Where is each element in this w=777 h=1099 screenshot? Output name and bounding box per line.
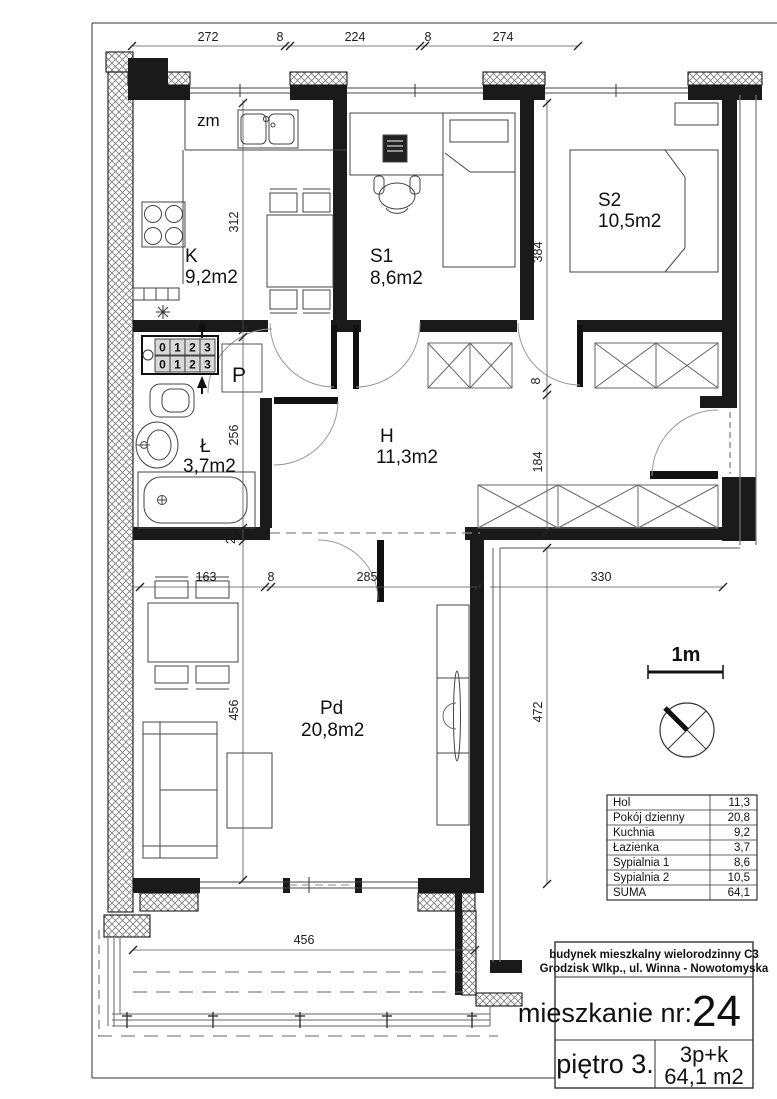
legend-row-value: 11,3 bbox=[728, 797, 750, 809]
computer-icon bbox=[383, 135, 407, 162]
dim-left-2: 8 bbox=[227, 325, 241, 332]
dim-corridor: 330 bbox=[591, 570, 612, 584]
legend-row-label: Pokój dzienny bbox=[613, 812, 685, 824]
tv-cabinet bbox=[437, 605, 469, 825]
label-bedroom2-name: S2 bbox=[598, 190, 621, 211]
meter-digit: 3 bbox=[204, 341, 211, 355]
legend-row-label: Kuchnia bbox=[613, 827, 655, 839]
floor-plan-page: 0 1 2 3 0 1 2 3 bbox=[0, 0, 777, 1099]
label-kitchen-name: K bbox=[185, 246, 198, 267]
dim-left-3: 256 bbox=[227, 425, 241, 446]
legend-row-value: 9,2 bbox=[734, 827, 750, 839]
legend-row-label: Sypialnia 1 bbox=[613, 857, 669, 869]
label-zm: zm bbox=[197, 111, 220, 130]
dim-bottom-1: 163 bbox=[196, 570, 217, 584]
label-storage: P bbox=[232, 364, 246, 387]
meter-digit: 2 bbox=[189, 341, 196, 355]
dim-left-4: 24 bbox=[224, 530, 238, 544]
meter-digit: 1 bbox=[174, 358, 181, 372]
legend-row-value: 3,7 bbox=[734, 842, 750, 854]
label-kitchen-area: 9,2m2 bbox=[185, 267, 238, 288]
label-hall-name: H bbox=[380, 426, 394, 447]
legend-row-label: Hol bbox=[613, 797, 630, 809]
bedroom1-furniture bbox=[350, 113, 515, 267]
title-block: budynek mieszkalny wielorodzinny C3 Grod… bbox=[518, 942, 769, 1089]
kitchen-table bbox=[267, 215, 333, 287]
single-bed bbox=[443, 113, 515, 267]
dim-right-1: 384 bbox=[531, 242, 545, 263]
apartment-label: mieszkanie nr: bbox=[518, 998, 692, 1028]
room-labels: zm K 9,2m2 S1 8,6m2 S2 10,5m2 Ł 3,7m2 H … bbox=[183, 111, 661, 741]
kitchen-sink bbox=[238, 110, 298, 148]
door-leaves bbox=[274, 325, 718, 602]
stove bbox=[142, 202, 185, 247]
label-bathroom-name: Ł bbox=[200, 436, 211, 457]
tv-icon bbox=[454, 671, 461, 761]
dim-top-1: 272 bbox=[198, 30, 219, 44]
label-living-name: Pd bbox=[320, 698, 343, 719]
meter-digit: 0 bbox=[159, 341, 166, 355]
floor-plan-drawing: 0 1 2 3 0 1 2 3 bbox=[0, 0, 777, 1099]
pillow bbox=[450, 120, 508, 142]
wardrobes bbox=[428, 343, 718, 528]
legend-row-value: 8,6 bbox=[734, 857, 750, 869]
dim-bottom-3: 285 bbox=[357, 570, 378, 584]
area-label: 64,1 m2 bbox=[664, 1064, 744, 1089]
legend-row-label: Łazienka bbox=[613, 842, 660, 854]
legend-table: Hol 11,3 Pokój dzienny 20,8 Kuchnia 9,2 … bbox=[607, 795, 757, 900]
bathtub bbox=[138, 472, 255, 528]
gas-point-icon bbox=[156, 305, 170, 319]
dimension-labels: 272 8 224 8 274 312 8 256 24 456 384 8 1… bbox=[196, 30, 612, 947]
bedroom2-furniture bbox=[570, 103, 718, 272]
kitchen-furniture bbox=[133, 100, 347, 319]
scale-bar: 1m bbox=[648, 644, 723, 679]
dim-top-4: 8 bbox=[425, 30, 432, 44]
meter-digit: 3 bbox=[204, 358, 211, 372]
sheet-frame bbox=[92, 23, 777, 1078]
coffee-table bbox=[227, 753, 272, 828]
building-name: budynek mieszkalny wielorodzinny C3 bbox=[549, 949, 759, 961]
office-chair bbox=[374, 176, 384, 194]
legend-row-value: 20,8 bbox=[728, 812, 750, 824]
scale-label: 1m bbox=[672, 644, 701, 666]
dim-left-1: 312 bbox=[227, 212, 241, 233]
dim-right-4: 472 bbox=[531, 702, 545, 723]
dining-table bbox=[148, 603, 238, 662]
dim-left-5: 456 bbox=[227, 700, 241, 721]
dim-right-2: 8 bbox=[529, 377, 543, 384]
dim-right-3: 184 bbox=[531, 452, 545, 473]
meter-digit: 1 bbox=[174, 341, 181, 355]
apartment-number: 24 bbox=[692, 987, 741, 1036]
north-arrow-icon bbox=[660, 703, 714, 757]
legend-row-value: 64,1 bbox=[728, 887, 750, 899]
legend-row-label: SUMA bbox=[613, 887, 647, 899]
dim-balcony: 456 bbox=[294, 933, 315, 947]
meter-digit: 2 bbox=[189, 358, 196, 372]
label-bathroom-area: 3,7m2 bbox=[183, 456, 236, 477]
label-living-area: 20,8m2 bbox=[301, 720, 364, 741]
dim-top-3: 224 bbox=[345, 30, 366, 44]
label-bedroom2-area: 10,5m2 bbox=[598, 211, 661, 232]
floor-label: piętro 3. bbox=[556, 1049, 654, 1079]
nightstand bbox=[675, 103, 718, 125]
dim-bottom-2: 8 bbox=[268, 570, 275, 584]
label-bedroom1-name: S1 bbox=[370, 246, 393, 267]
door-swings bbox=[208, 323, 718, 600]
legend-row-value: 10,5 bbox=[728, 872, 750, 884]
meter-digit: 0 bbox=[159, 358, 166, 372]
label-bedroom1-area: 8,6m2 bbox=[370, 268, 423, 289]
dim-top-5: 274 bbox=[493, 30, 514, 44]
building-address: Grodzisk Wlkp., ul. Winna - Nowotomyska bbox=[540, 963, 769, 975]
label-hall-area: 11,3m2 bbox=[376, 447, 438, 468]
living-furniture bbox=[143, 577, 469, 858]
dim-top-2: 8 bbox=[277, 30, 284, 44]
legend-row-label: Sypialnia 2 bbox=[613, 872, 669, 884]
